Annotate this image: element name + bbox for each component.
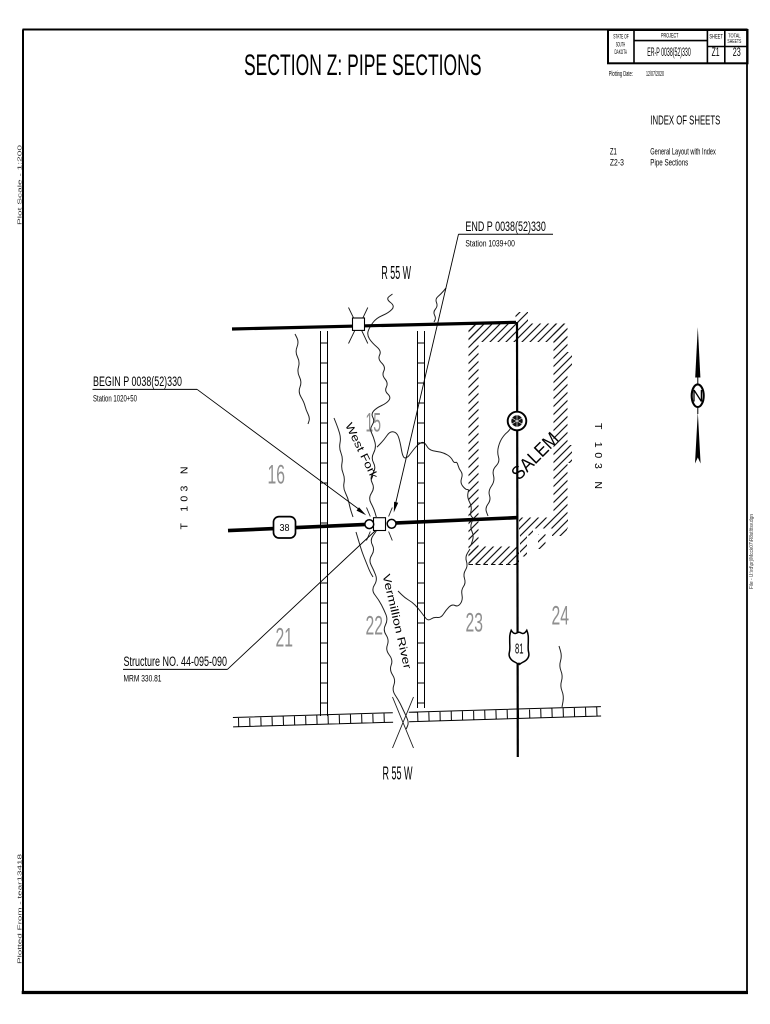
svg-text:Plotted From - tear13418: Plotted From - tear13418 — [18, 854, 24, 964]
svg-text:R 55 W: R 55 W — [383, 764, 413, 784]
svg-text:23: 23 — [733, 47, 741, 59]
svg-text:16: 16 — [268, 460, 286, 490]
svg-text:General Layout with Index: General Layout with Index — [650, 147, 716, 157]
svg-text:Z1: Z1 — [610, 147, 617, 157]
svg-text:DAKOTA: DAKOTA — [614, 50, 627, 56]
svg-text:STATE OF: STATE OF — [613, 35, 629, 41]
svg-text:SHEETS: SHEETS — [727, 39, 741, 45]
svg-text:PROJECT: PROJECT — [661, 34, 679, 40]
svg-text:24: 24 — [552, 601, 570, 631]
svg-text:22: 22 — [366, 611, 384, 641]
svg-text:INDEX OF SHEETS: INDEX OF SHEETS — [650, 114, 720, 128]
svg-text:Station 1039+00: Station 1039+00 — [465, 239, 515, 249]
svg-text:BEGIN P 0038(52)330: BEGIN P 0038(52)330 — [93, 374, 182, 389]
svg-text:SECTION Z: PIPE SECTIONS: SECTION Z: PIPE SECTIONS — [244, 49, 482, 82]
svg-text:File - U:\rd\prj\Mcck07\R8stlt: File - U:\rd\prj\Mcck07\R8stlttsv.dgn — [749, 514, 755, 589]
svg-text:Pipe Sections: Pipe Sections — [650, 157, 688, 167]
svg-text:ER-P 0038(52)330: ER-P 0038(52)330 — [647, 47, 691, 59]
svg-text:Plotting Date:: Plotting Date: — [609, 69, 633, 78]
svg-text:R 55 W: R 55 W — [381, 263, 411, 283]
svg-text:Plot Scale - 1:200: Plot Scale - 1:200 — [18, 145, 24, 225]
svg-text:81: 81 — [515, 640, 524, 657]
svg-text:SOUTH: SOUTH — [616, 42, 626, 48]
svg-text:21: 21 — [276, 623, 294, 653]
svg-text:SHEET: SHEET — [709, 34, 723, 40]
svg-text:Z2-3: Z2-3 — [610, 157, 624, 167]
svg-text:MRM 330.81: MRM 330.81 — [124, 674, 162, 684]
svg-text:Structure NO. 44-095-090: Structure NO. 44-095-090 — [124, 654, 228, 669]
svg-text:23: 23 — [466, 608, 484, 638]
svg-text:38: 38 — [280, 523, 290, 534]
svg-text:END P 0038(52)330: END P 0038(52)330 — [465, 219, 546, 234]
svg-text:12/07/2020: 12/07/2020 — [646, 69, 664, 78]
svg-text:Z1: Z1 — [712, 47, 720, 59]
svg-text:Station 1020+50: Station 1020+50 — [93, 394, 137, 404]
